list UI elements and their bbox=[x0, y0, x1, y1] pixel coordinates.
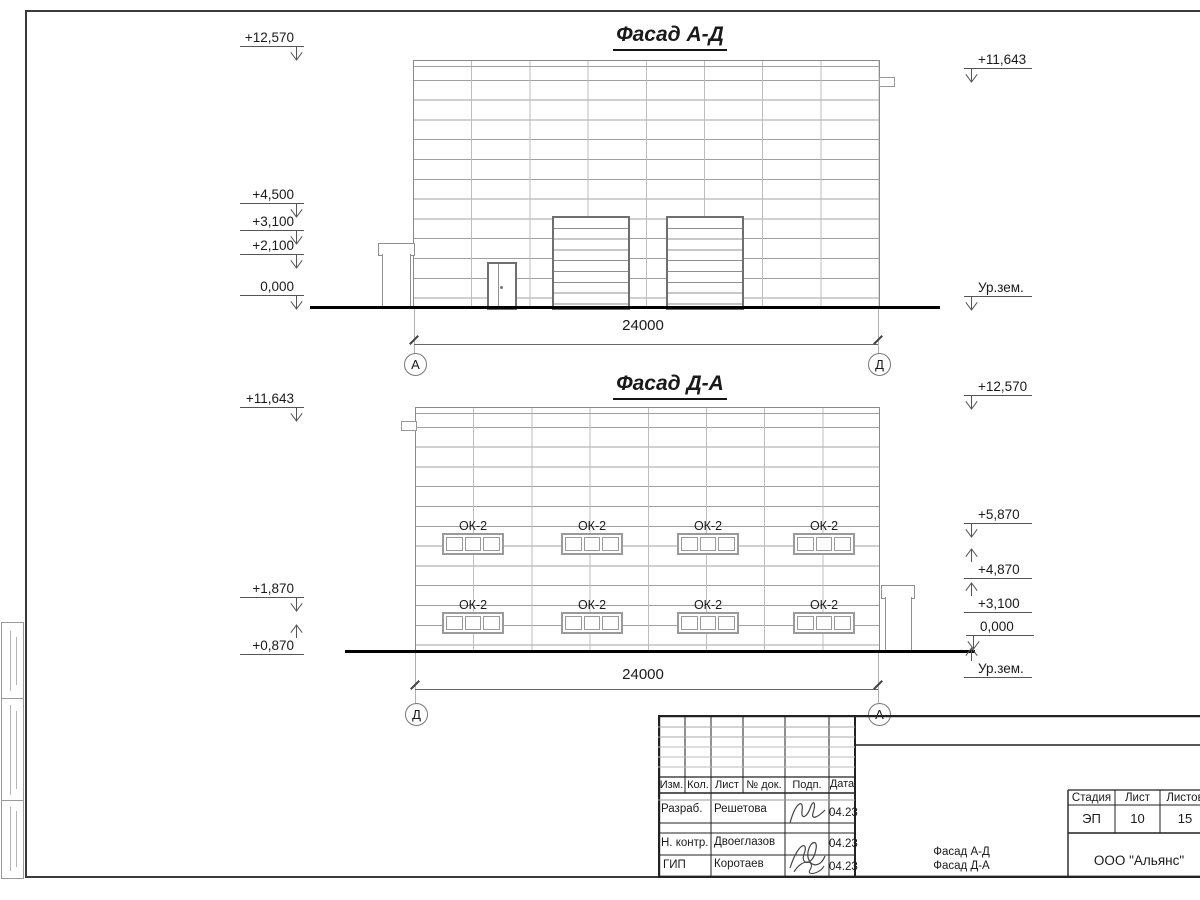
level-mark: +3,100 bbox=[964, 596, 1032, 613]
tb-doc-name-line1: Фасад А-Д bbox=[855, 846, 1068, 858]
level-mark: Ур.зем. bbox=[964, 661, 1032, 678]
tb-col-kol: Кол. bbox=[685, 779, 711, 791]
level-text: +11,643 bbox=[964, 52, 1032, 69]
tb-role: Разраб. bbox=[661, 803, 702, 815]
level-text: +3,100 bbox=[964, 596, 1032, 613]
tb-doc-name-line2: Фасад Д-А bbox=[855, 860, 1068, 872]
tb-role: Н. контр. bbox=[661, 837, 708, 849]
level-arrow-down-icon bbox=[965, 524, 978, 538]
tb-name: Решетова bbox=[714, 803, 767, 815]
ground-line bbox=[310, 306, 940, 309]
level-arrow-down-icon bbox=[290, 47, 303, 61]
tb-col-ndok: № док. bbox=[743, 779, 785, 791]
level-mark: +1,870 bbox=[240, 581, 304, 598]
tb-stage-value: ЭП bbox=[1068, 811, 1115, 826]
level-arrow-down-icon bbox=[290, 408, 303, 422]
facade-da-title: Фасад Д-А bbox=[560, 372, 780, 400]
facade-ad-title-text: Фасад А-Д bbox=[613, 23, 727, 51]
window-ok2 bbox=[677, 533, 739, 555]
axis-extension-line bbox=[415, 653, 416, 703]
window-ok2 bbox=[561, 533, 623, 555]
level-mark: +3,100 bbox=[240, 214, 304, 231]
axis-bubble-d: Д bbox=[868, 353, 891, 376]
tb-name: Коротаев bbox=[714, 858, 764, 870]
annex-body bbox=[885, 597, 912, 651]
tb-col-data: Дата bbox=[829, 778, 855, 790]
axis-bubble-d: Д bbox=[405, 703, 428, 726]
level-text: +5,870 bbox=[964, 507, 1032, 524]
window-label: ОК-2 bbox=[793, 519, 855, 533]
window-label: ОК-2 bbox=[442, 598, 504, 612]
margin-stamp-box bbox=[1, 698, 24, 802]
tb-stage-label: Стадия bbox=[1068, 792, 1115, 804]
margin-stamp-box bbox=[1, 622, 24, 700]
dimension-line bbox=[414, 344, 878, 345]
level-text: 0,000 bbox=[966, 619, 1034, 636]
window-ok2 bbox=[793, 533, 855, 555]
tb-col-podp: Подп. bbox=[785, 779, 829, 791]
level-arrow-up-icon bbox=[290, 624, 303, 638]
gutter-stub bbox=[879, 77, 895, 87]
window-ok2 bbox=[561, 612, 623, 634]
facade-da-title-text: Фасад Д-А bbox=[613, 372, 727, 400]
facade-ad-building bbox=[413, 60, 880, 308]
level-arrow-down-icon bbox=[290, 296, 303, 310]
tb-sheets-value: 15 bbox=[1160, 811, 1200, 826]
level-text: +11,643 bbox=[240, 391, 304, 408]
window-label: ОК-2 bbox=[793, 598, 855, 612]
ground-line bbox=[345, 650, 975, 653]
level-text: +3,100 bbox=[240, 214, 304, 231]
level-mark: +12,570 bbox=[964, 379, 1032, 396]
facade-ad-title: Фасад А-Д bbox=[560, 23, 780, 51]
level-mark: +11,643 bbox=[240, 391, 304, 408]
dimension-line bbox=[415, 689, 878, 690]
parapet-line bbox=[416, 413, 879, 414]
tb-company: ООО "Альянс" bbox=[1070, 853, 1200, 868]
annex-body bbox=[382, 254, 411, 307]
level-mark: +5,870 bbox=[964, 507, 1032, 524]
tb-sheet-value: 10 bbox=[1115, 811, 1160, 826]
tb-date: 04.23 bbox=[829, 838, 855, 850]
level-mark: 0,000 bbox=[966, 619, 1034, 636]
title-block: Изм. Кол. Лист № док. Подп. Дата Разраб.… bbox=[658, 715, 1200, 878]
level-arrow-down-icon bbox=[290, 255, 303, 269]
tb-date: 04.23 bbox=[829, 807, 855, 819]
level-mark: +12,570 bbox=[240, 30, 304, 47]
level-text: +1,870 bbox=[240, 581, 304, 598]
sectional-gate-2 bbox=[666, 216, 744, 310]
level-arrow-up-icon bbox=[965, 647, 978, 661]
level-arrow-down-icon bbox=[290, 598, 303, 612]
window-ok2 bbox=[677, 612, 739, 634]
level-text: +2,100 bbox=[240, 238, 304, 255]
level-text: +12,570 bbox=[964, 379, 1032, 396]
window-label: ОК-2 bbox=[677, 519, 739, 533]
axis-extension-line bbox=[878, 653, 879, 703]
signature-icon bbox=[786, 834, 828, 876]
dimension-text: 24000 bbox=[583, 317, 703, 334]
window-ok2 bbox=[442, 612, 504, 634]
level-text: +0,870 bbox=[240, 638, 304, 655]
level-mark: +4,870 bbox=[964, 562, 1032, 579]
level-arrow-down-icon bbox=[965, 396, 978, 410]
margin-stamp-box bbox=[1, 800, 24, 879]
level-mark: +4,500 bbox=[240, 187, 304, 204]
level-text: Ур.зем. bbox=[964, 280, 1032, 297]
window-label: ОК-2 bbox=[561, 598, 623, 612]
drawing-sheet: Фасад А-Д 24000 А Д +12,570 +4,500 +3,10… bbox=[0, 0, 1200, 900]
gutter-stub bbox=[401, 421, 417, 431]
axis-extension-line bbox=[878, 309, 879, 353]
tb-col-list: Лист bbox=[711, 779, 743, 791]
parapet-line bbox=[414, 66, 879, 67]
level-text: +4,500 bbox=[240, 187, 304, 204]
window-label: ОК-2 bbox=[561, 519, 623, 533]
window-ok2 bbox=[442, 533, 504, 555]
tb-name: Двоеглазов bbox=[714, 836, 775, 848]
tb-sheets-label: Листов bbox=[1160, 792, 1200, 804]
dimension-text: 24000 bbox=[583, 666, 703, 683]
level-arrow-up-icon bbox=[965, 548, 978, 562]
level-text: +4,870 bbox=[964, 562, 1032, 579]
level-mark: Ур.зем. bbox=[964, 280, 1032, 297]
axis-extension-line bbox=[414, 309, 415, 353]
tb-role: ГИП bbox=[663, 859, 686, 871]
level-mark: +2,100 bbox=[240, 238, 304, 255]
axis-bubble-a: А bbox=[404, 353, 427, 376]
level-arrow-up-icon bbox=[965, 582, 978, 596]
signature-icon bbox=[786, 795, 828, 829]
level-mark: +11,643 bbox=[964, 52, 1032, 69]
level-mark: 0,000 bbox=[240, 279, 304, 296]
level-mark: +0,870 bbox=[240, 638, 304, 655]
level-arrow-down-icon bbox=[965, 297, 978, 311]
tb-date: 04.23 bbox=[829, 861, 855, 873]
tb-col-izm: Изм. bbox=[658, 779, 685, 791]
tb-sheet-label: Лист bbox=[1115, 792, 1160, 804]
entrance-door bbox=[487, 262, 517, 310]
window-label: ОК-2 bbox=[442, 519, 504, 533]
level-text: Ур.зем. bbox=[964, 661, 1032, 678]
sectional-gate-1 bbox=[552, 216, 630, 310]
window-ok2 bbox=[793, 612, 855, 634]
window-label: ОК-2 bbox=[677, 598, 739, 612]
level-text: +12,570 bbox=[240, 30, 304, 47]
level-text: 0,000 bbox=[240, 279, 304, 296]
level-arrow-down-icon bbox=[965, 69, 978, 83]
